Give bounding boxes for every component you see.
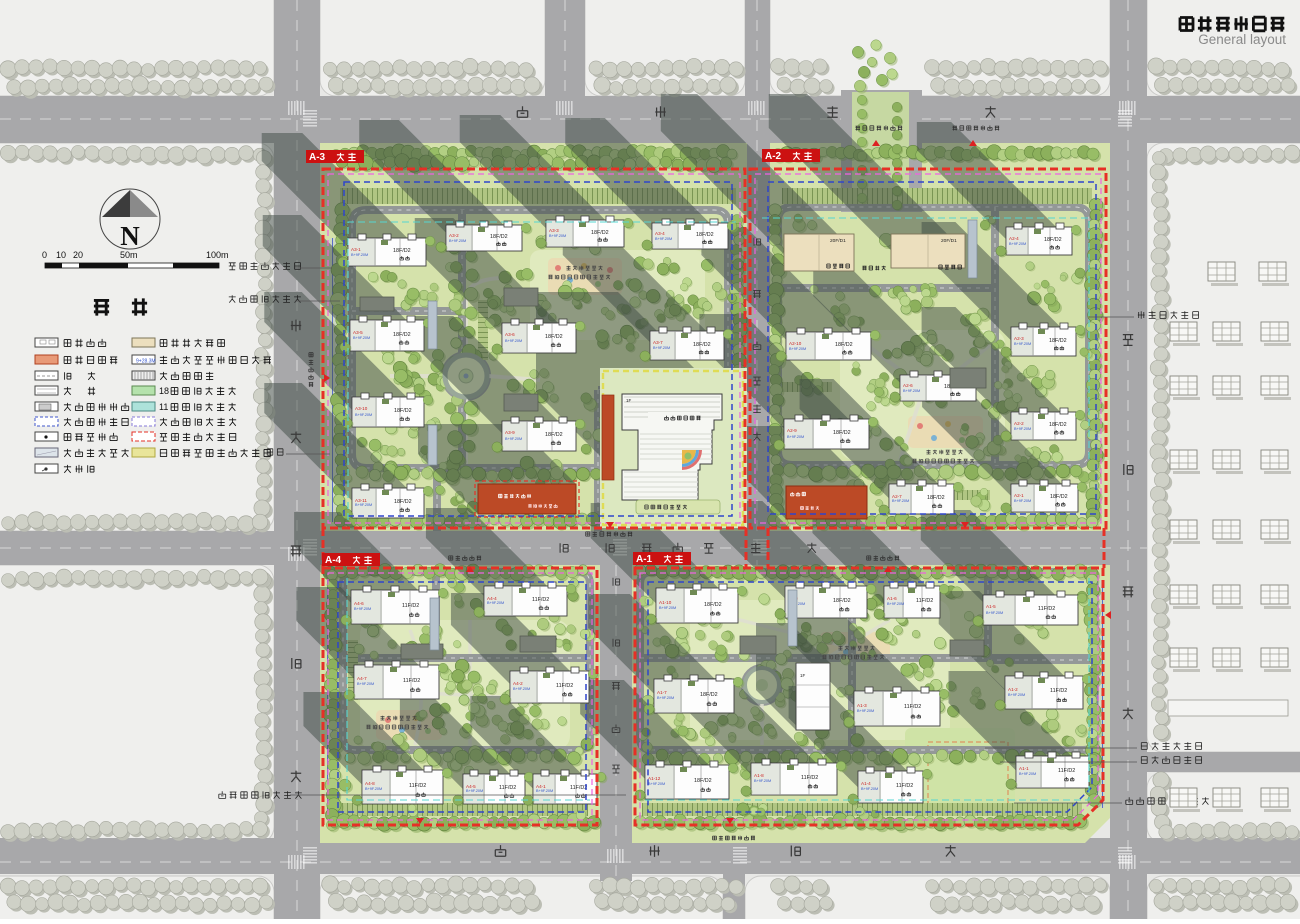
svg-text:18F/D2: 18F/D2 — [696, 232, 714, 238]
svg-text:B+9F.20M: B+9F.20M — [449, 239, 466, 243]
svg-text:A3-6: A3-6 — [505, 332, 515, 337]
svg-text:A1-2: A1-2 — [1008, 687, 1018, 692]
svg-text:20: 20 — [73, 250, 83, 260]
svg-text:A2-6: A2-6 — [903, 383, 913, 388]
svg-text:A2-2: A2-2 — [1014, 421, 1024, 426]
svg-text:20F/D1: 20F/D1 — [830, 238, 846, 244]
svg-text:20F/D1: 20F/D1 — [941, 238, 957, 244]
svg-text:B+9F.20M: B+9F.20M — [353, 336, 370, 340]
svg-text:B+9F.20M: B+9F.20M — [365, 787, 382, 791]
svg-text:A3-5: A3-5 — [353, 330, 363, 335]
svg-text:B+9F.20M: B+9F.20M — [351, 253, 368, 257]
svg-text:18F/D2: 18F/D2 — [393, 332, 411, 338]
svg-text:11F/D2: 11F/D2 — [1038, 606, 1055, 612]
svg-text:B+9F.20M: B+9F.20M — [466, 789, 483, 793]
svg-text:18F/D2: 18F/D2 — [694, 778, 712, 784]
svg-text:A2-4: A2-4 — [1009, 236, 1019, 241]
svg-text:A3-7: A3-7 — [653, 340, 663, 345]
svg-text:11F/D2: 11F/D2 — [904, 704, 921, 710]
svg-text:B+9F.20M: B+9F.20M — [355, 413, 372, 417]
svg-text:B+9F.20M: B+9F.20M — [513, 687, 530, 691]
svg-text:11F/D2: 11F/D2 — [402, 603, 419, 609]
svg-text:A1-4: A1-4 — [861, 781, 871, 786]
svg-text:N: N — [120, 221, 140, 251]
svg-text:A3-4: A3-4 — [655, 231, 665, 236]
svg-text:18F/D2: 18F/D2 — [545, 334, 563, 340]
svg-text:A4-7: A4-7 — [357, 676, 367, 681]
svg-text:B+9F.20M: B+9F.20M — [1014, 342, 1031, 346]
svg-text:10: 10 — [56, 250, 66, 260]
svg-text:A1-5: A1-5 — [986, 604, 996, 609]
svg-text:B+9F.20M: B+9F.20M — [1014, 499, 1031, 503]
svg-text:B+9F.20M: B+9F.20M — [505, 339, 522, 343]
svg-text:11F/D2: 11F/D2 — [1050, 688, 1067, 694]
svg-text:B+9F.20M: B+9F.20M — [1014, 427, 1031, 431]
svg-text:18F/D2: 18F/D2 — [700, 692, 718, 698]
svg-text:18F/D2: 18F/D2 — [835, 342, 853, 348]
svg-text:A1-10: A1-10 — [659, 600, 672, 605]
svg-text:100m: 100m — [206, 250, 229, 260]
svg-text:18F/D2: 18F/D2 — [1050, 494, 1068, 500]
svg-text:18F/D2: 18F/D2 — [591, 230, 609, 236]
svg-text:B+9F.20M: B+9F.20M — [1019, 772, 1036, 776]
svg-text:A2-3: A2-3 — [1014, 336, 1024, 341]
svg-text:B+9F.20M: B+9F.20M — [659, 606, 676, 610]
svg-text:B+9F.20M: B+9F.20M — [549, 234, 566, 238]
svg-text:0: 0 — [42, 250, 47, 260]
svg-text:18F/D2: 18F/D2 — [1049, 422, 1067, 428]
svg-text:11F/D2: 11F/D2 — [570, 785, 587, 791]
svg-text:A-3: A-3 — [309, 152, 326, 163]
svg-text:18F/D2: 18F/D2 — [545, 432, 563, 438]
svg-text:B+9F.20M: B+9F.20M — [505, 437, 522, 441]
svg-text:18F/D2: 18F/D2 — [927, 495, 945, 501]
svg-text:B+9F.20M: B+9F.20M — [861, 787, 878, 791]
svg-text:18F/D2: 18F/D2 — [833, 430, 851, 436]
svg-text:A1-6: A1-6 — [887, 596, 897, 601]
svg-text:18F/D2: 18F/D2 — [393, 248, 411, 254]
svg-text:11F/D2: 11F/D2 — [801, 775, 818, 781]
svg-text:B+9F.20M: B+9F.20M — [357, 682, 374, 686]
svg-text:B+9F.20M: B+9F.20M — [355, 503, 372, 507]
svg-text:B+9F.20M: B+9F.20M — [657, 696, 674, 700]
svg-text:B+9F.20M: B+9F.20M — [354, 607, 371, 611]
svg-text:B+9F.20M: B+9F.20M — [754, 779, 771, 783]
svg-text:11F/D2: 11F/D2 — [896, 783, 913, 789]
svg-text:B+9F.20M: B+9F.20M — [536, 789, 553, 793]
svg-text:B+9F.20M: B+9F.20M — [789, 347, 806, 351]
svg-text:A3-2: A3-2 — [449, 233, 459, 238]
svg-text:A3-9: A3-9 — [505, 430, 515, 435]
svg-text:11F/D2: 11F/D2 — [916, 598, 933, 604]
svg-text:18F/D2: 18F/D2 — [394, 408, 412, 414]
svg-text:18F/D2: 18F/D2 — [704, 602, 722, 608]
svg-text:18F/D2: 18F/D2 — [1049, 338, 1067, 344]
svg-text:11F/D2: 11F/D2 — [1058, 768, 1075, 774]
svg-text:A2-10: A2-10 — [789, 341, 802, 346]
svg-text:A4-6: A4-6 — [354, 601, 364, 606]
svg-text:A4-8: A4-8 — [365, 781, 375, 786]
svg-text:B+9F.20M: B+9F.20M — [857, 709, 874, 713]
svg-text:B+9F.20M: B+9F.20M — [487, 601, 504, 605]
svg-text:11F/D2: 11F/D2 — [556, 683, 573, 689]
svg-text:B+9F.20M: B+9F.20M — [787, 435, 804, 439]
svg-text:9+28.3M: 9+28.3M — [136, 359, 156, 365]
svg-text:18F/D2: 18F/D2 — [1044, 237, 1062, 243]
svg-text:11: 11 — [159, 402, 168, 412]
svg-text:A1-3: A1-3 — [857, 703, 867, 708]
svg-text:B+9F.20M: B+9F.20M — [648, 782, 665, 786]
svg-text:A1-12: A1-12 — [648, 776, 661, 781]
svg-text:A-4: A-4 — [325, 555, 342, 566]
svg-text:A3-3: A3-3 — [549, 228, 559, 233]
svg-text:A4-2: A4-2 — [513, 681, 523, 686]
svg-text:A1-1: A1-1 — [1019, 766, 1029, 771]
svg-text:A-1: A-1 — [636, 554, 653, 565]
svg-text:B+9F.20M: B+9F.20M — [653, 346, 670, 350]
svg-text:18F/D2: 18F/D2 — [490, 234, 508, 240]
svg-text:18F/D2: 18F/D2 — [394, 499, 412, 505]
svg-text:11F/D2: 11F/D2 — [499, 785, 516, 791]
svg-text:B+9F.20M: B+9F.20M — [655, 237, 672, 241]
svg-text:A1-7: A1-7 — [657, 690, 667, 695]
svg-text:18: 18 — [159, 386, 169, 396]
svg-text:B+9F.20M: B+9F.20M — [892, 499, 909, 503]
svg-text:50m: 50m — [120, 250, 138, 260]
svg-text:B+9F.20M: B+9F.20M — [1008, 693, 1025, 697]
svg-text:11F/D2: 11F/D2 — [403, 678, 420, 684]
svg-text:A2-1: A2-1 — [1014, 493, 1024, 498]
svg-text:B+9F.20M: B+9F.20M — [903, 389, 920, 393]
svg-text:18F/D2: 18F/D2 — [693, 342, 711, 348]
svg-text:1F: 1F — [800, 673, 806, 678]
svg-text:A2-9: A2-9 — [787, 428, 797, 433]
svg-text:A1-8: A1-8 — [754, 773, 764, 778]
svg-text:B+9F.20M: B+9F.20M — [1009, 242, 1026, 246]
svg-text:A3-10: A3-10 — [355, 406, 368, 411]
svg-text:A3-1: A3-1 — [351, 247, 361, 252]
svg-text:B+9F.20M: B+9F.20M — [986, 611, 1003, 615]
svg-text:18F/D2: 18F/D2 — [833, 598, 851, 604]
svg-text:11F/D2: 11F/D2 — [409, 783, 426, 789]
svg-text:B+9F.20M: B+9F.20M — [887, 602, 904, 606]
svg-text:A-2: A-2 — [765, 151, 782, 162]
svg-text:11F/D2: 11F/D2 — [532, 597, 549, 603]
svg-text:1F: 1F — [626, 398, 632, 403]
svg-text:General layout: General layout — [1198, 32, 1286, 47]
